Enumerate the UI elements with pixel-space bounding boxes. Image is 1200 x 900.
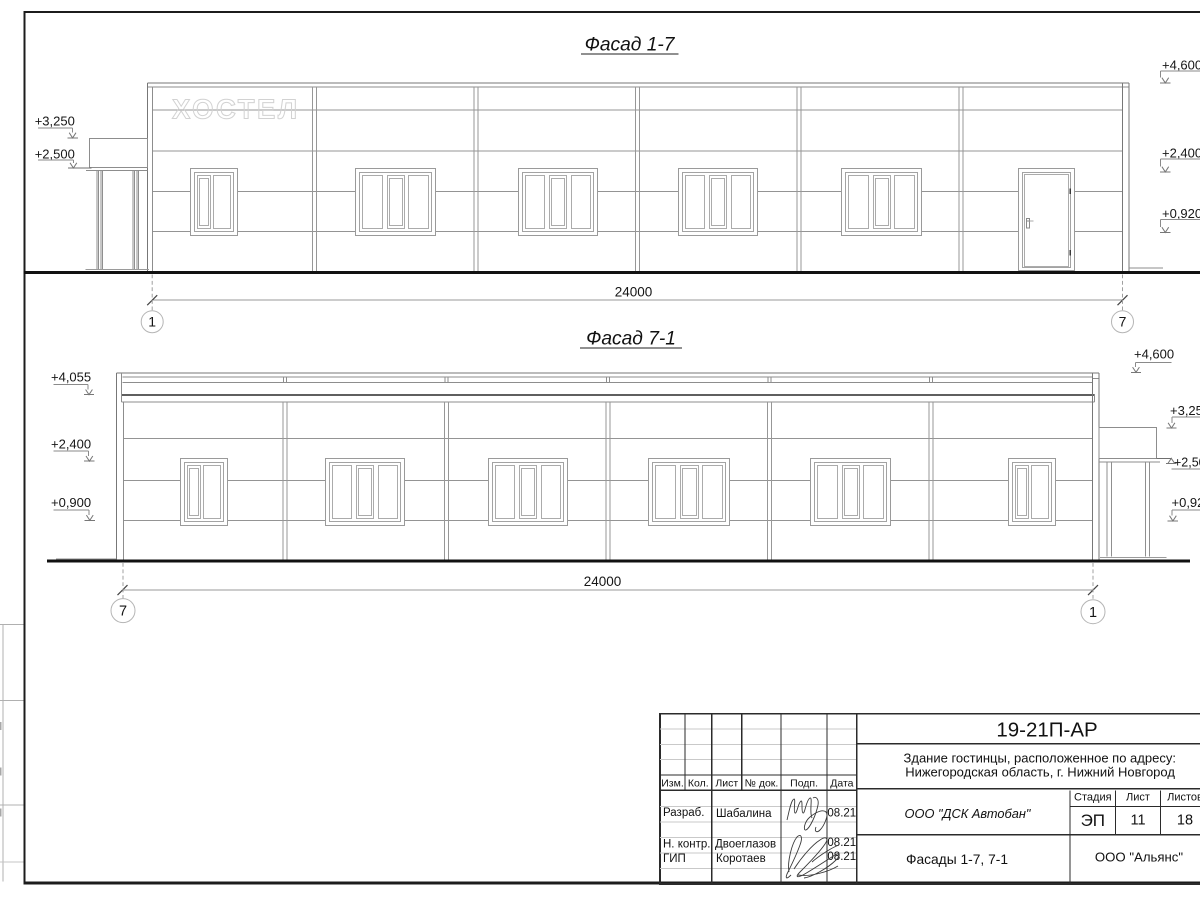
svg-text:+3,250: +3,250	[1170, 403, 1200, 418]
svg-text:+0,900: +0,900	[51, 495, 91, 510]
svg-text:7: 7	[119, 604, 127, 620]
svg-text:+2,500: +2,500	[35, 147, 75, 162]
svg-text:+3,250: +3,250	[35, 114, 75, 129]
svg-text:Листов: Листов	[1167, 792, 1200, 804]
svg-text:24000: 24000	[584, 574, 622, 589]
svg-text:Шабалина: Шабалина	[716, 808, 772, 820]
svg-text:Стадия: Стадия	[1074, 792, 1112, 804]
svg-text:Двоеглазов: Двоеглазов	[715, 839, 776, 851]
svg-text:Лист: Лист	[715, 778, 738, 790]
svg-text:19-21П-АР: 19-21П-АР	[996, 718, 1097, 741]
svg-text:Фасады 1-7, 7-1: Фасады 1-7, 7-1	[906, 852, 1008, 867]
svg-text:18: 18	[1177, 813, 1193, 829]
svg-text:ООО "ДСК Автобан": ООО "ДСК Автобан"	[905, 806, 1032, 821]
svg-text:Дата: Дата	[830, 777, 853, 789]
svg-text:Подп.: Подп.	[790, 778, 818, 790]
svg-text:Фасад 7-1: Фасад 7-1	[586, 329, 676, 350]
svg-text:№ док.: № док.	[745, 778, 779, 790]
svg-text:+2,400: +2,400	[51, 436, 91, 451]
svg-text:Фасад 1-7: Фасад 1-7	[585, 35, 676, 56]
svg-text:Разраб.: Разраб.	[663, 807, 704, 819]
svg-text:24000: 24000	[615, 284, 653, 299]
svg-text:+4,600: +4,600	[1162, 57, 1200, 72]
svg-text:1: 1	[148, 314, 156, 330]
svg-text:+0,920: +0,920	[1172, 495, 1200, 510]
svg-text:ООО "Альянс": ООО "Альянс"	[1095, 850, 1183, 865]
svg-text:Кол.: Кол.	[688, 778, 709, 790]
svg-text:ЭП: ЭП	[1081, 811, 1105, 830]
svg-text:11: 11	[1130, 813, 1145, 829]
svg-text:ГИП: ГИП	[663, 853, 686, 865]
svg-text:Здание гостинцы, расположенное: Здание гостинцы, расположенное по адресу…	[904, 750, 1176, 765]
svg-text:Коротаев: Коротаев	[716, 853, 766, 865]
svg-text:+4,600: +4,600	[1134, 346, 1174, 361]
svg-text:Лист: Лист	[1126, 792, 1150, 804]
svg-text:Нижегородская область, г. Нижн: Нижегородская область, г. Нижний Новгоро…	[905, 764, 1175, 779]
svg-text:08.21: 08.21	[827, 837, 856, 849]
svg-text:08.21: 08.21	[827, 808, 856, 820]
svg-text:Изм.: Изм.	[661, 778, 684, 790]
svg-text:+0,920: +0,920	[1162, 206, 1200, 221]
svg-text:ХОСТЕЛ: ХОСТЕЛ	[172, 93, 300, 124]
svg-text:+2,400: +2,400	[1162, 145, 1200, 160]
svg-text:+4,055: +4,055	[51, 370, 91, 385]
svg-text:+2,500: +2,500	[1174, 456, 1200, 470]
svg-text:1: 1	[1089, 605, 1097, 621]
svg-text:7: 7	[1119, 314, 1127, 330]
svg-text:Н. контр.: Н. контр.	[663, 838, 710, 850]
